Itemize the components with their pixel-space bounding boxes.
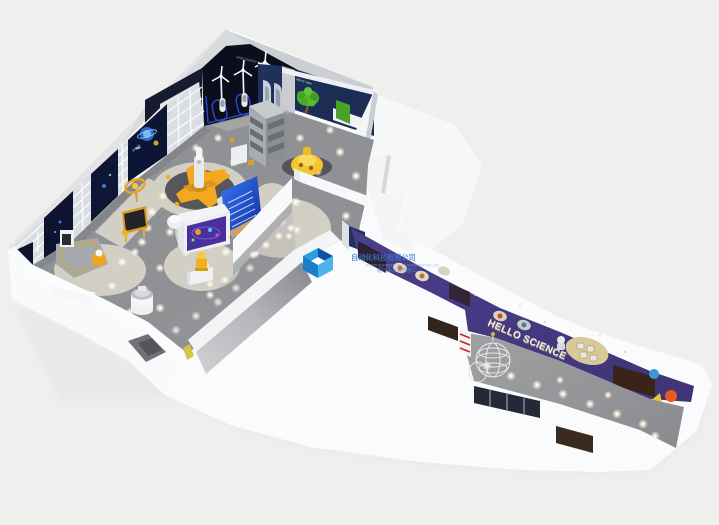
svg-text:自动化科技有限公司: 自动化科技有限公司: [351, 253, 416, 262]
svg-text:XXXXX AUTOMATION TECHNOLOGY CO: XXXXX AUTOMATION TECHNOLOGY CO.,LTD: [366, 264, 440, 268]
svg-text:展厅设计装修施工: 展厅设计装修施工: [377, 267, 417, 274]
